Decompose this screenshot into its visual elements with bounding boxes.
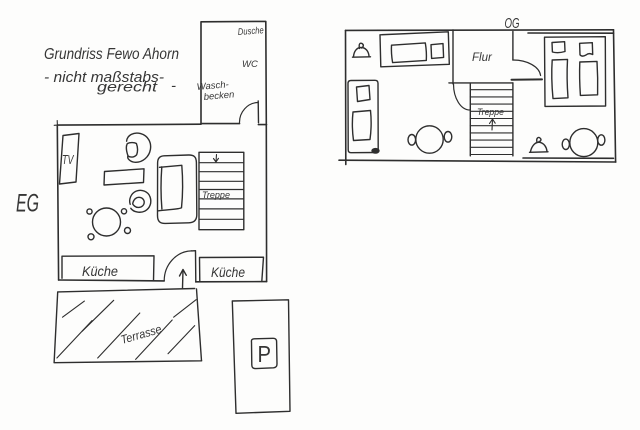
svg-text:P: P: [258, 341, 272, 367]
svg-text:Grundriss Fewo Ahorn: Grundriss Fewo Ahorn: [44, 46, 179, 63]
svg-text:Treppe: Treppe: [477, 107, 504, 117]
svg-text:EG: EG: [16, 190, 39, 218]
svg-text:WC: WC: [242, 59, 258, 70]
svg-text:gerecht: gerecht: [97, 79, 158, 95]
svg-text:Treppe: Treppe: [202, 190, 230, 201]
svg-text:Terrasse: Terrasse: [119, 322, 164, 347]
svg-text:Küche: Küche: [82, 264, 118, 279]
svg-text:TV: TV: [62, 152, 74, 167]
svg-text:-: -: [171, 78, 176, 95]
svg-text:becken: becken: [203, 89, 234, 103]
svg-text:Dusche: Dusche: [237, 25, 264, 38]
svg-text:Flur: Flur: [472, 52, 493, 64]
svg-text:Küche: Küche: [211, 265, 245, 280]
